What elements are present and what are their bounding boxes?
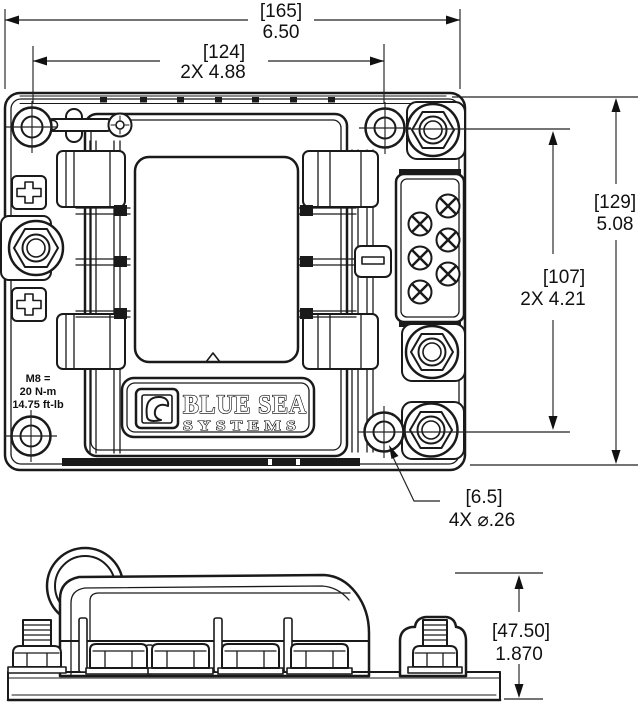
side-view bbox=[8, 548, 500, 700]
dim-profile-height-inch: 1.870 bbox=[495, 644, 543, 665]
dim-hole-spacing-height-inch: 2X 4.21 bbox=[520, 289, 586, 310]
torque-line-1: M8 = bbox=[26, 373, 51, 385]
dim-profile-height-metric: [47.50] bbox=[492, 621, 550, 642]
dim-overall-height-metric: [129] bbox=[594, 192, 636, 213]
dim-hole-spacing-width-inch: 2X 4.88 bbox=[180, 62, 246, 83]
engineering-drawing: BLUE SEA SYSTEMS M8 = 20 N-m 14.75 ft-lb bbox=[0, 0, 640, 709]
dim-overall-height-inch: 5.08 bbox=[597, 214, 634, 235]
torque-line-2: 20 N-m bbox=[20, 386, 57, 398]
side-right-stud bbox=[400, 617, 466, 676]
torque-line-3: 14.75 ft-lb bbox=[12, 399, 64, 411]
dim-mounting-holes-metric: [6.5] bbox=[466, 487, 503, 508]
terminal-block bbox=[396, 169, 464, 327]
dim-hole-spacing-height-metric: [107] bbox=[543, 267, 585, 288]
drawing-canvas: BLUE SEA SYSTEMS M8 = 20 N-m 14.75 ft-lb bbox=[0, 0, 640, 709]
dim-mounting-holes-inch: 4X ⌀.26 bbox=[449, 510, 515, 531]
logo-subtitle: SYSTEMS bbox=[183, 418, 301, 433]
dim-overall-width-metric: [165] bbox=[260, 1, 302, 22]
negative-terminal-marker bbox=[355, 246, 391, 277]
top-view: BLUE SEA SYSTEMS M8 = 20 N-m 14.75 ft-lb bbox=[1, 93, 465, 470]
logo-plate: BLUE SEA SYSTEMS bbox=[122, 378, 314, 437]
dim-overall-width-inch: 6.50 bbox=[263, 22, 300, 43]
logo-title: BLUE SEA bbox=[183, 390, 307, 419]
dim-hole-spacing-width-metric: [124] bbox=[203, 42, 245, 63]
cover-window bbox=[135, 157, 298, 362]
bottom-edge-band bbox=[62, 458, 360, 466]
side-left-stud bbox=[8, 620, 66, 673]
dimension-profile-height: [47.50] 1.870 bbox=[455, 573, 550, 699]
